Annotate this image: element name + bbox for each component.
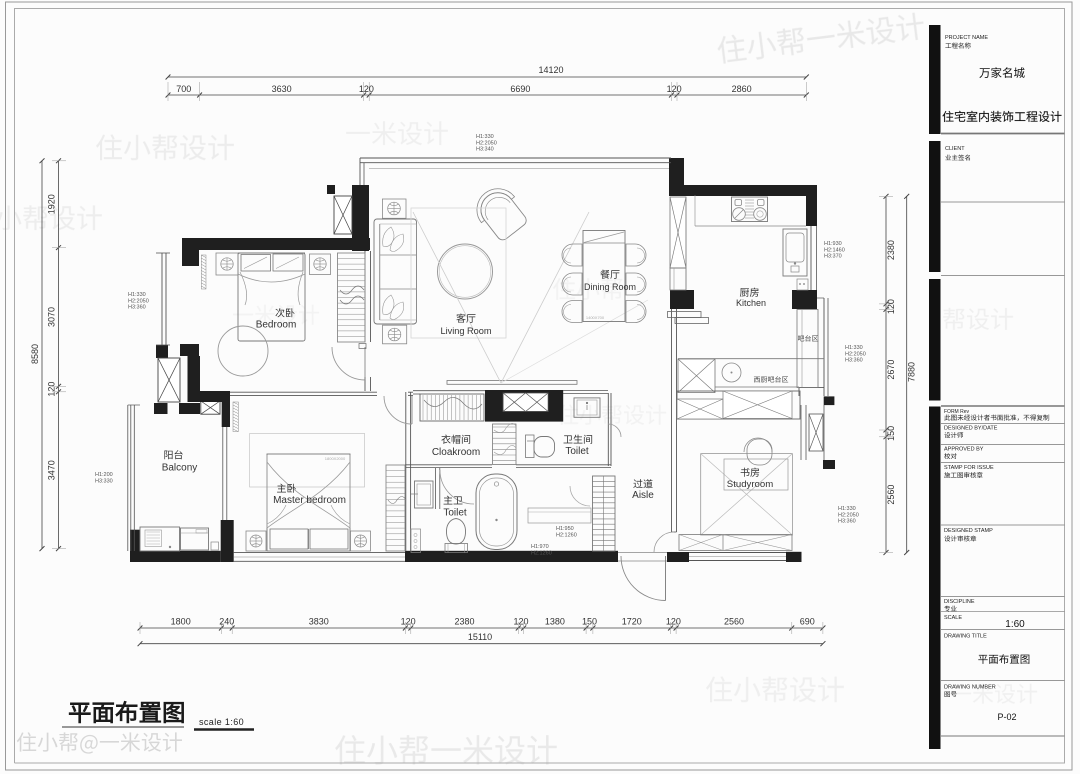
svg-text:H3:360: H3:360: [128, 305, 146, 311]
svg-text:Toilet: Toilet: [565, 446, 589, 457]
svg-text:H3:340: H3:340: [476, 147, 494, 153]
svg-text:DRAWING NUMBER: DRAWING NUMBER: [944, 685, 996, 691]
svg-text:Aisle: Aisle: [632, 490, 654, 501]
svg-text:FORM Rev: FORM Rev: [944, 409, 970, 415]
svg-text:H1:330: H1:330: [476, 134, 494, 140]
svg-text:1720: 1720: [622, 617, 642, 627]
svg-text:H1:330: H1:330: [128, 292, 146, 298]
svg-text:120: 120: [886, 299, 896, 314]
svg-text:H1:330: H1:330: [845, 345, 863, 351]
svg-text:15110: 15110: [468, 632, 492, 642]
svg-text:1800X2000: 1800X2000: [325, 456, 346, 461]
svg-text:2670: 2670: [886, 360, 896, 380]
svg-text:H2:2050: H2:2050: [838, 512, 859, 518]
svg-text:H3:360: H3:360: [845, 358, 863, 364]
svg-text:H3:370: H3:370: [824, 254, 842, 260]
svg-text:3630: 3630: [272, 84, 292, 94]
svg-text:SCALE: SCALE: [944, 615, 962, 621]
svg-text:2860: 2860: [732, 84, 752, 94]
svg-text:2380: 2380: [886, 240, 896, 260]
svg-text:7880: 7880: [907, 362, 917, 382]
svg-text:P-02: P-02: [997, 712, 1016, 722]
svg-text:DESIGNED BY/DATE: DESIGNED BY/DATE: [944, 426, 998, 432]
svg-text:APPROVED BY: APPROVED BY: [944, 447, 984, 453]
svg-text:240: 240: [219, 617, 234, 627]
svg-text:1400X700: 1400X700: [586, 315, 605, 320]
svg-text:3830: 3830: [309, 617, 329, 627]
svg-text:120: 120: [359, 84, 374, 94]
svg-text:1:60: 1:60: [1005, 619, 1025, 630]
svg-text:Toilet: Toilet: [443, 508, 467, 519]
svg-text:120: 120: [667, 84, 682, 94]
svg-text:scale 1:60: scale 1:60: [199, 717, 244, 727]
svg-text:H2:1260: H2:1260: [556, 532, 577, 538]
svg-text:1920: 1920: [47, 194, 57, 214]
svg-text:Living Room: Living Room: [440, 326, 491, 336]
svg-text:DRAWING TITLE: DRAWING TITLE: [944, 634, 987, 640]
svg-text:700: 700: [176, 84, 191, 94]
svg-text:1380: 1380: [545, 617, 565, 627]
svg-text:DESIGNED STAMP: DESIGNED STAMP: [944, 528, 993, 534]
svg-text:DISCIPLINE: DISCIPLINE: [944, 599, 975, 605]
svg-text:2560: 2560: [724, 617, 744, 627]
svg-text:H2:2050: H2:2050: [128, 298, 149, 304]
svg-text:H1:970: H1:970: [531, 544, 549, 550]
svg-text:120: 120: [666, 617, 681, 627]
svg-text:PROJECT NAME: PROJECT NAME: [945, 35, 988, 41]
svg-text:Studyroom: Studyroom: [727, 479, 773, 490]
svg-text:H3:360: H3:360: [838, 519, 856, 525]
svg-text:Master bedroom: Master bedroom: [273, 495, 346, 506]
svg-text:Kitchen: Kitchen: [736, 298, 766, 308]
svg-text:H2:2050: H2:2050: [476, 140, 497, 146]
svg-text:Cloakroom: Cloakroom: [432, 447, 480, 458]
svg-text:Balcony: Balcony: [162, 463, 198, 474]
svg-text:Dining Room: Dining Room: [584, 282, 636, 292]
svg-text:8580: 8580: [30, 344, 40, 364]
svg-text:H1:330: H1:330: [838, 506, 856, 512]
svg-text:120: 120: [401, 617, 416, 627]
svg-text:3070: 3070: [47, 307, 57, 327]
svg-text:150: 150: [886, 426, 896, 441]
svg-text:Bedroom: Bedroom: [256, 320, 297, 331]
svg-text:120: 120: [47, 382, 57, 397]
svg-text:3470: 3470: [47, 460, 57, 480]
svg-text:150: 150: [582, 617, 597, 627]
svg-text:2380: 2380: [454, 617, 474, 627]
svg-text:6690: 6690: [510, 84, 530, 94]
svg-text:H2:1260: H2:1260: [531, 550, 552, 556]
svg-text:H3:330: H3:330: [95, 478, 113, 484]
svg-text:CLIENT: CLIENT: [945, 146, 965, 152]
svg-text:H2:2050: H2:2050: [845, 351, 866, 357]
svg-text:H1:930: H1:930: [824, 241, 842, 247]
svg-text:690: 690: [800, 617, 815, 627]
svg-text:14120: 14120: [538, 65, 563, 75]
svg-text:H1:950: H1:950: [556, 526, 574, 532]
svg-text:H1:200: H1:200: [95, 472, 113, 478]
svg-text:1800: 1800: [171, 617, 191, 627]
svg-text:120: 120: [513, 617, 528, 627]
svg-text:STAMP FOR ISSUE: STAMP FOR ISSUE: [944, 465, 994, 471]
svg-text:2560: 2560: [886, 485, 896, 505]
svg-text:H2:1460: H2:1460: [824, 247, 845, 253]
